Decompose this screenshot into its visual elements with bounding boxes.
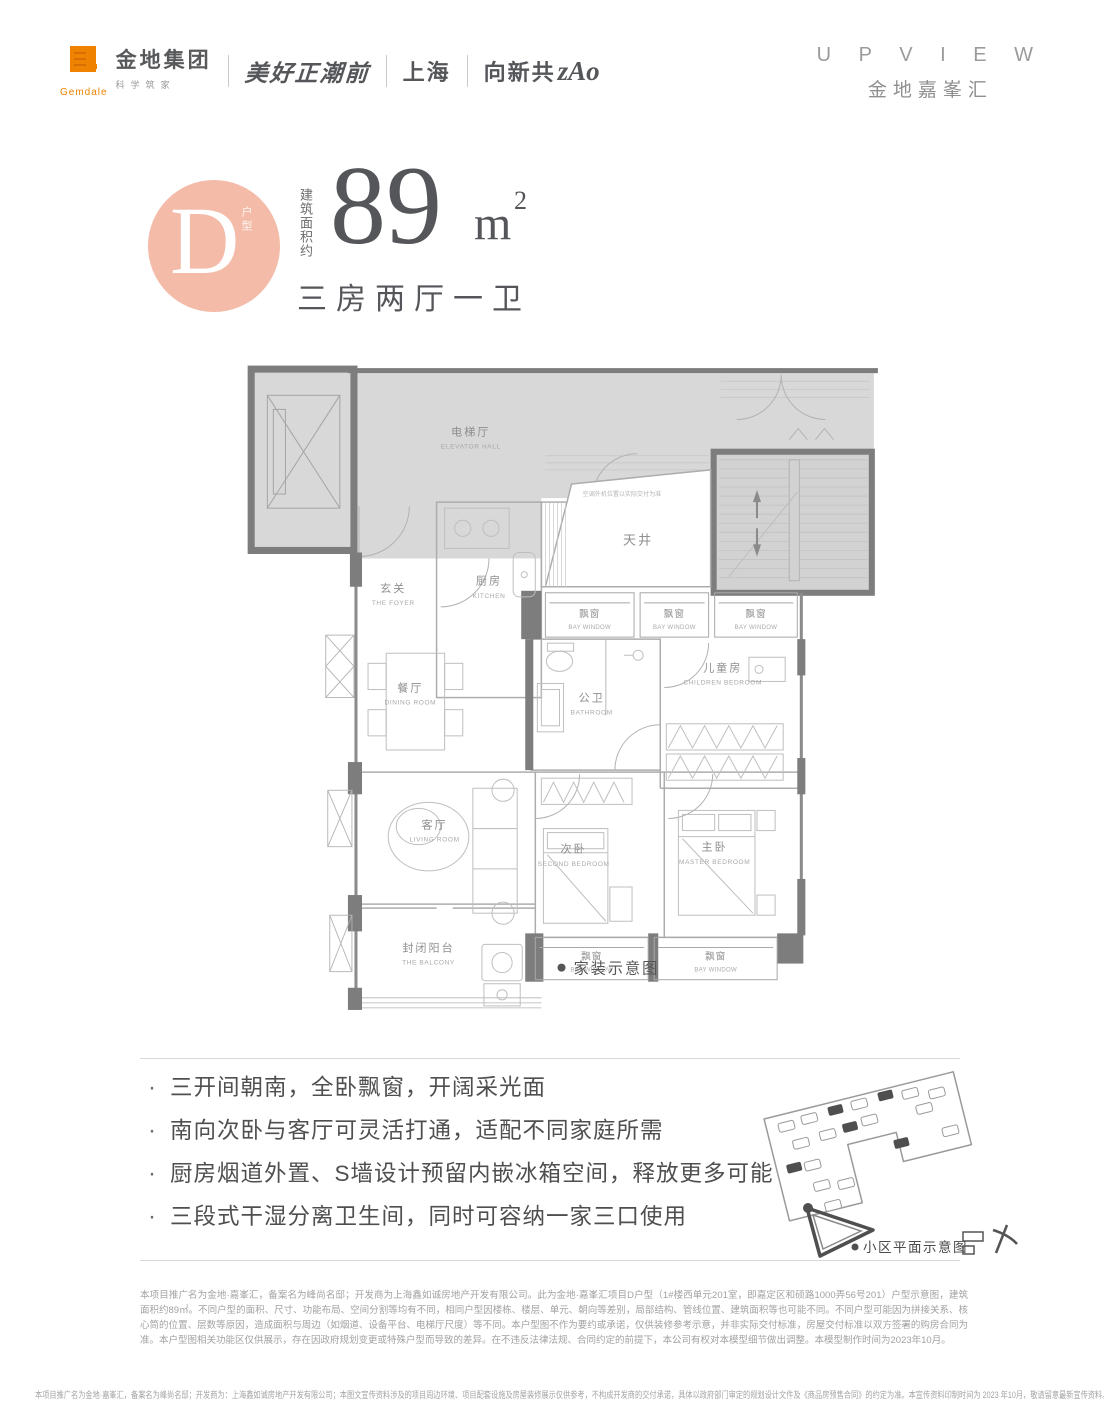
room-label-elevator-hall-en: ELEVATOR HALL [441, 444, 501, 451]
room-label-children: 儿童房 [703, 660, 742, 674]
room-label-dining: 餐厅 [397, 681, 423, 695]
siteplan: 小区平面示意图 [745, 1058, 1065, 1268]
unit-type-label: 户型 [238, 206, 254, 234]
area-value: 89 [330, 150, 442, 262]
brand-name-cn: 金地嘉峯汇 [817, 75, 1044, 102]
feature-text: 三段式干湿分离卫生间，同时可容纳一家三口使用 [170, 1199, 687, 1231]
north-compass-icon [963, 1225, 1017, 1254]
unit-type-letter: D [170, 188, 239, 294]
bay-window-label-en: BAY WINDOW [568, 625, 611, 631]
bullet-icon: · [148, 1203, 170, 1231]
feature-item: ·三开间朝南，全卧飘窗，开阔采光面 [148, 1070, 788, 1113]
gemdale-name-cn: 金地集团 [116, 44, 212, 74]
room-label-living: 客厅 [421, 818, 447, 832]
feature-item: ·南向次卧与客厅可灵活打通，适配不同家庭所需 [148, 1113, 788, 1156]
ac-note: 空调外机位置以实际交付为准 [583, 490, 661, 498]
feature-item: ·厨房烟道外置、S墙设计预留内嵌冰箱空间，释放更多可能 [148, 1156, 788, 1199]
zao-slogan: 向新共 zAo [484, 55, 600, 87]
brand-name-en: U P V I E W [817, 44, 1044, 67]
brochure-page: Gemdale 金地集团 科学筑家 美好正潮前 上海 向新共 zAo U P V… [0, 0, 1104, 1412]
wall-columns [348, 552, 805, 1009]
gemdale-logo-icon [70, 46, 96, 72]
bay-window-label-en: BAY WINDOW [735, 625, 778, 631]
room-label-lightwell: 天井 [623, 532, 653, 547]
area-label: 建筑面积约 [296, 188, 315, 258]
gemdale-logo: Gemdale 金地集团 科学筑家 [60, 44, 212, 98]
room-label-foyer: 玄关 [380, 581, 406, 595]
bullet-icon: · [148, 1117, 170, 1145]
area-unit: m [474, 196, 511, 251]
bay-window-label: 飘窗 [664, 608, 685, 620]
top-wall [348, 368, 878, 373]
header-left-logos: Gemdale 金地集团 科学筑家 美好正潮前 上海 向新共 zAo [60, 44, 600, 98]
campaign-slogan: 美好正潮前 [243, 54, 370, 88]
room-label-bathroom-en: BATHROOM [571, 710, 613, 717]
elevator-shaft [251, 369, 354, 550]
room-label-second-bedroom-en: SECOND BEDROOM [538, 861, 610, 868]
zao-slogan-prefix: 向新共 [484, 55, 556, 87]
room-label-bathroom: 公卫 [579, 693, 605, 705]
plan-caption: 家装示意图 [574, 960, 660, 978]
unit-type-badge: D 户型 [148, 180, 280, 312]
room-label-balcony-en: THE BALCONY [402, 960, 455, 967]
bay-window-label: 飘窗 [705, 951, 726, 963]
feature-item: ·三段式干湿分离卫生间，同时可容纳一家三口使用 [148, 1199, 788, 1242]
left-shaft-columns [326, 635, 354, 972]
room-label-kitchen: 厨房 [476, 575, 502, 588]
building-footprints-dark [774, 1088, 910, 1175]
city-label: 上海 [403, 55, 451, 87]
room-label-dining-en: DINING ROOM [385, 700, 437, 707]
site-outline-group [764, 1072, 979, 1221]
room-label-children-en: CHILDREN BEDROOM [683, 679, 762, 686]
room-label-second-bedroom: 次卧 [561, 842, 587, 856]
header-divider [467, 55, 468, 87]
siteplan-drawing: 小区平面示意图 [745, 1058, 1065, 1263]
bay-window-label-en: BAY WINDOW [653, 625, 696, 631]
project-brand: U P V I E W 金地嘉峯汇 [817, 44, 1044, 102]
header: Gemdale 金地集团 科学筑家 美好正潮前 上海 向新共 zAo U P V… [60, 44, 1044, 102]
floorplan: 电梯厅 ELEVATOR HALL 玄关 THE FOYER 厨房 KITCHE… [237, 355, 882, 1025]
room-label-foyer-en: THE FOYER [372, 600, 415, 607]
zao-slogan-logotype: zAo [558, 56, 600, 87]
room-label-living-en: LIVING ROOM [409, 837, 459, 844]
gemdale-tagline: 科学筑家 [116, 78, 212, 91]
room-label-master-bedroom-en: MASTER BEDROOM [679, 859, 750, 866]
feature-text: 三开间朝南，全卧飘窗，开阔采光面 [170, 1070, 546, 1102]
room-label-kitchen-en: KITCHEN [473, 593, 506, 600]
feature-text: 厨房烟道外置、S墙设计预留内嵌冰箱空间，释放更多可能 [170, 1156, 774, 1188]
bullet-icon: · [148, 1074, 170, 1102]
siteplan-caption: 小区平面示意图 [863, 1239, 968, 1255]
header-divider [386, 55, 387, 87]
layout-description: 三房两厅一卫 [297, 274, 531, 318]
feature-text: 南向次卧与客厅可灵活打通，适配不同家庭所需 [170, 1113, 664, 1145]
bay-window-label: 飘窗 [579, 608, 600, 620]
bay-windows [535, 593, 797, 980]
bullet-icon: · [148, 1160, 170, 1188]
header-divider [228, 55, 229, 87]
bay-window-label: 飘窗 [745, 608, 766, 620]
caption-bullet-icon [852, 1244, 859, 1251]
room-label-master-bedroom: 主卧 [702, 841, 728, 854]
caption-bullet-icon [557, 964, 565, 972]
footer-disclaimer: 本项目推广名为金地·嘉峯汇，备案名为峰尚名邸；开发商为：上海鑫如诚房地产开发有限… [35, 1388, 1075, 1401]
bay-window-label-en: BAY WINDOW [694, 968, 737, 974]
room-label-balcony: 封闭阳台 [402, 940, 454, 954]
building-footprints [777, 1078, 970, 1218]
gemdale-name-en: Gemdale [60, 87, 108, 98]
room-label-elevator-hall: 电梯厅 [451, 426, 490, 439]
area-exponent: 2 [514, 186, 527, 216]
feature-list: ·三开间朝南，全卧飘窗，开阔采光面 ·南向次卧与客厅可灵活打通，适配不同家庭所需… [148, 1070, 788, 1242]
floorplan-drawing: 电梯厅 ELEVATOR HALL 玄关 THE FOYER 厨房 KITCHE… [237, 355, 882, 1020]
disclaimer-paragraph: 本项目推广名为金地·嘉峯汇，备案名为峰尚名邸；开发商为上海鑫如诚房地产开发有限公… [140, 1288, 968, 1348]
